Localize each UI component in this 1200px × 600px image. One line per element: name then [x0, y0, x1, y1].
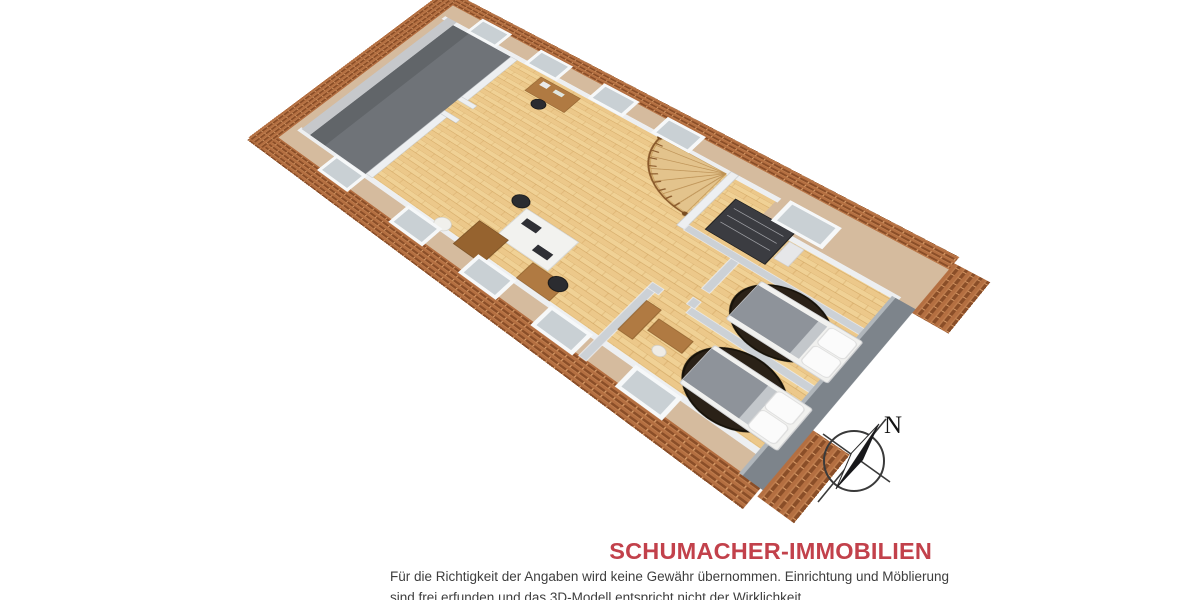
disclaimer-line-1: Für die Richtigkeit der Angaben wird kei…: [390, 566, 950, 587]
compass: N: [800, 395, 940, 520]
disclaimer-line-2: sind frei erfunden und das 3D-Modell ent…: [390, 587, 950, 600]
compass-north-label: N: [884, 412, 902, 439]
company-title: SCHUMACHER-IMMOBILIEN: [560, 538, 932, 565]
real-estate-floorplan-page: N SCHUMACHER-IMMOBILIEN Für die Richtigk…: [0, 0, 1200, 600]
disclaimer: Für die Richtigkeit der Angaben wird kei…: [390, 566, 950, 600]
